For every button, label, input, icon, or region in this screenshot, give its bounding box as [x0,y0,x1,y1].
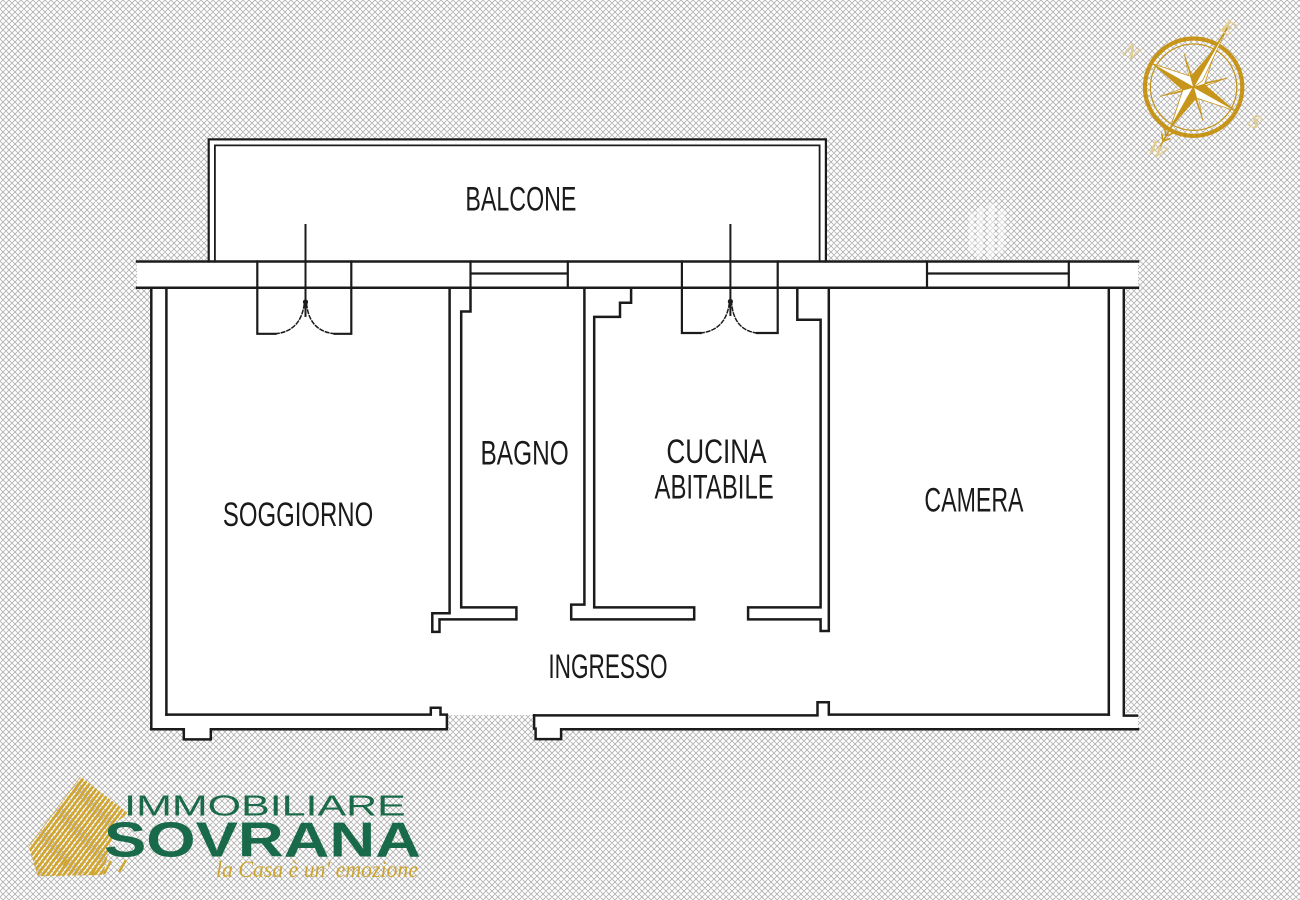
svg-text:BALCONE: BALCONE [465,180,576,218]
svg-text:la Casa è un' emozione: la Casa è un' emozione [216,857,418,882]
svg-text:BAGNO: BAGNO [481,434,569,472]
svg-text:INGRESSO: INGRESSO [548,648,667,686]
svg-text:ABITABILE: ABITABILE [655,469,774,507]
svg-text:SOGGIORNO: SOGGIORNO [223,496,373,534]
svg-text:CUCINA: CUCINA [666,433,766,471]
svg-text:CAMERA: CAMERA [924,482,1023,520]
